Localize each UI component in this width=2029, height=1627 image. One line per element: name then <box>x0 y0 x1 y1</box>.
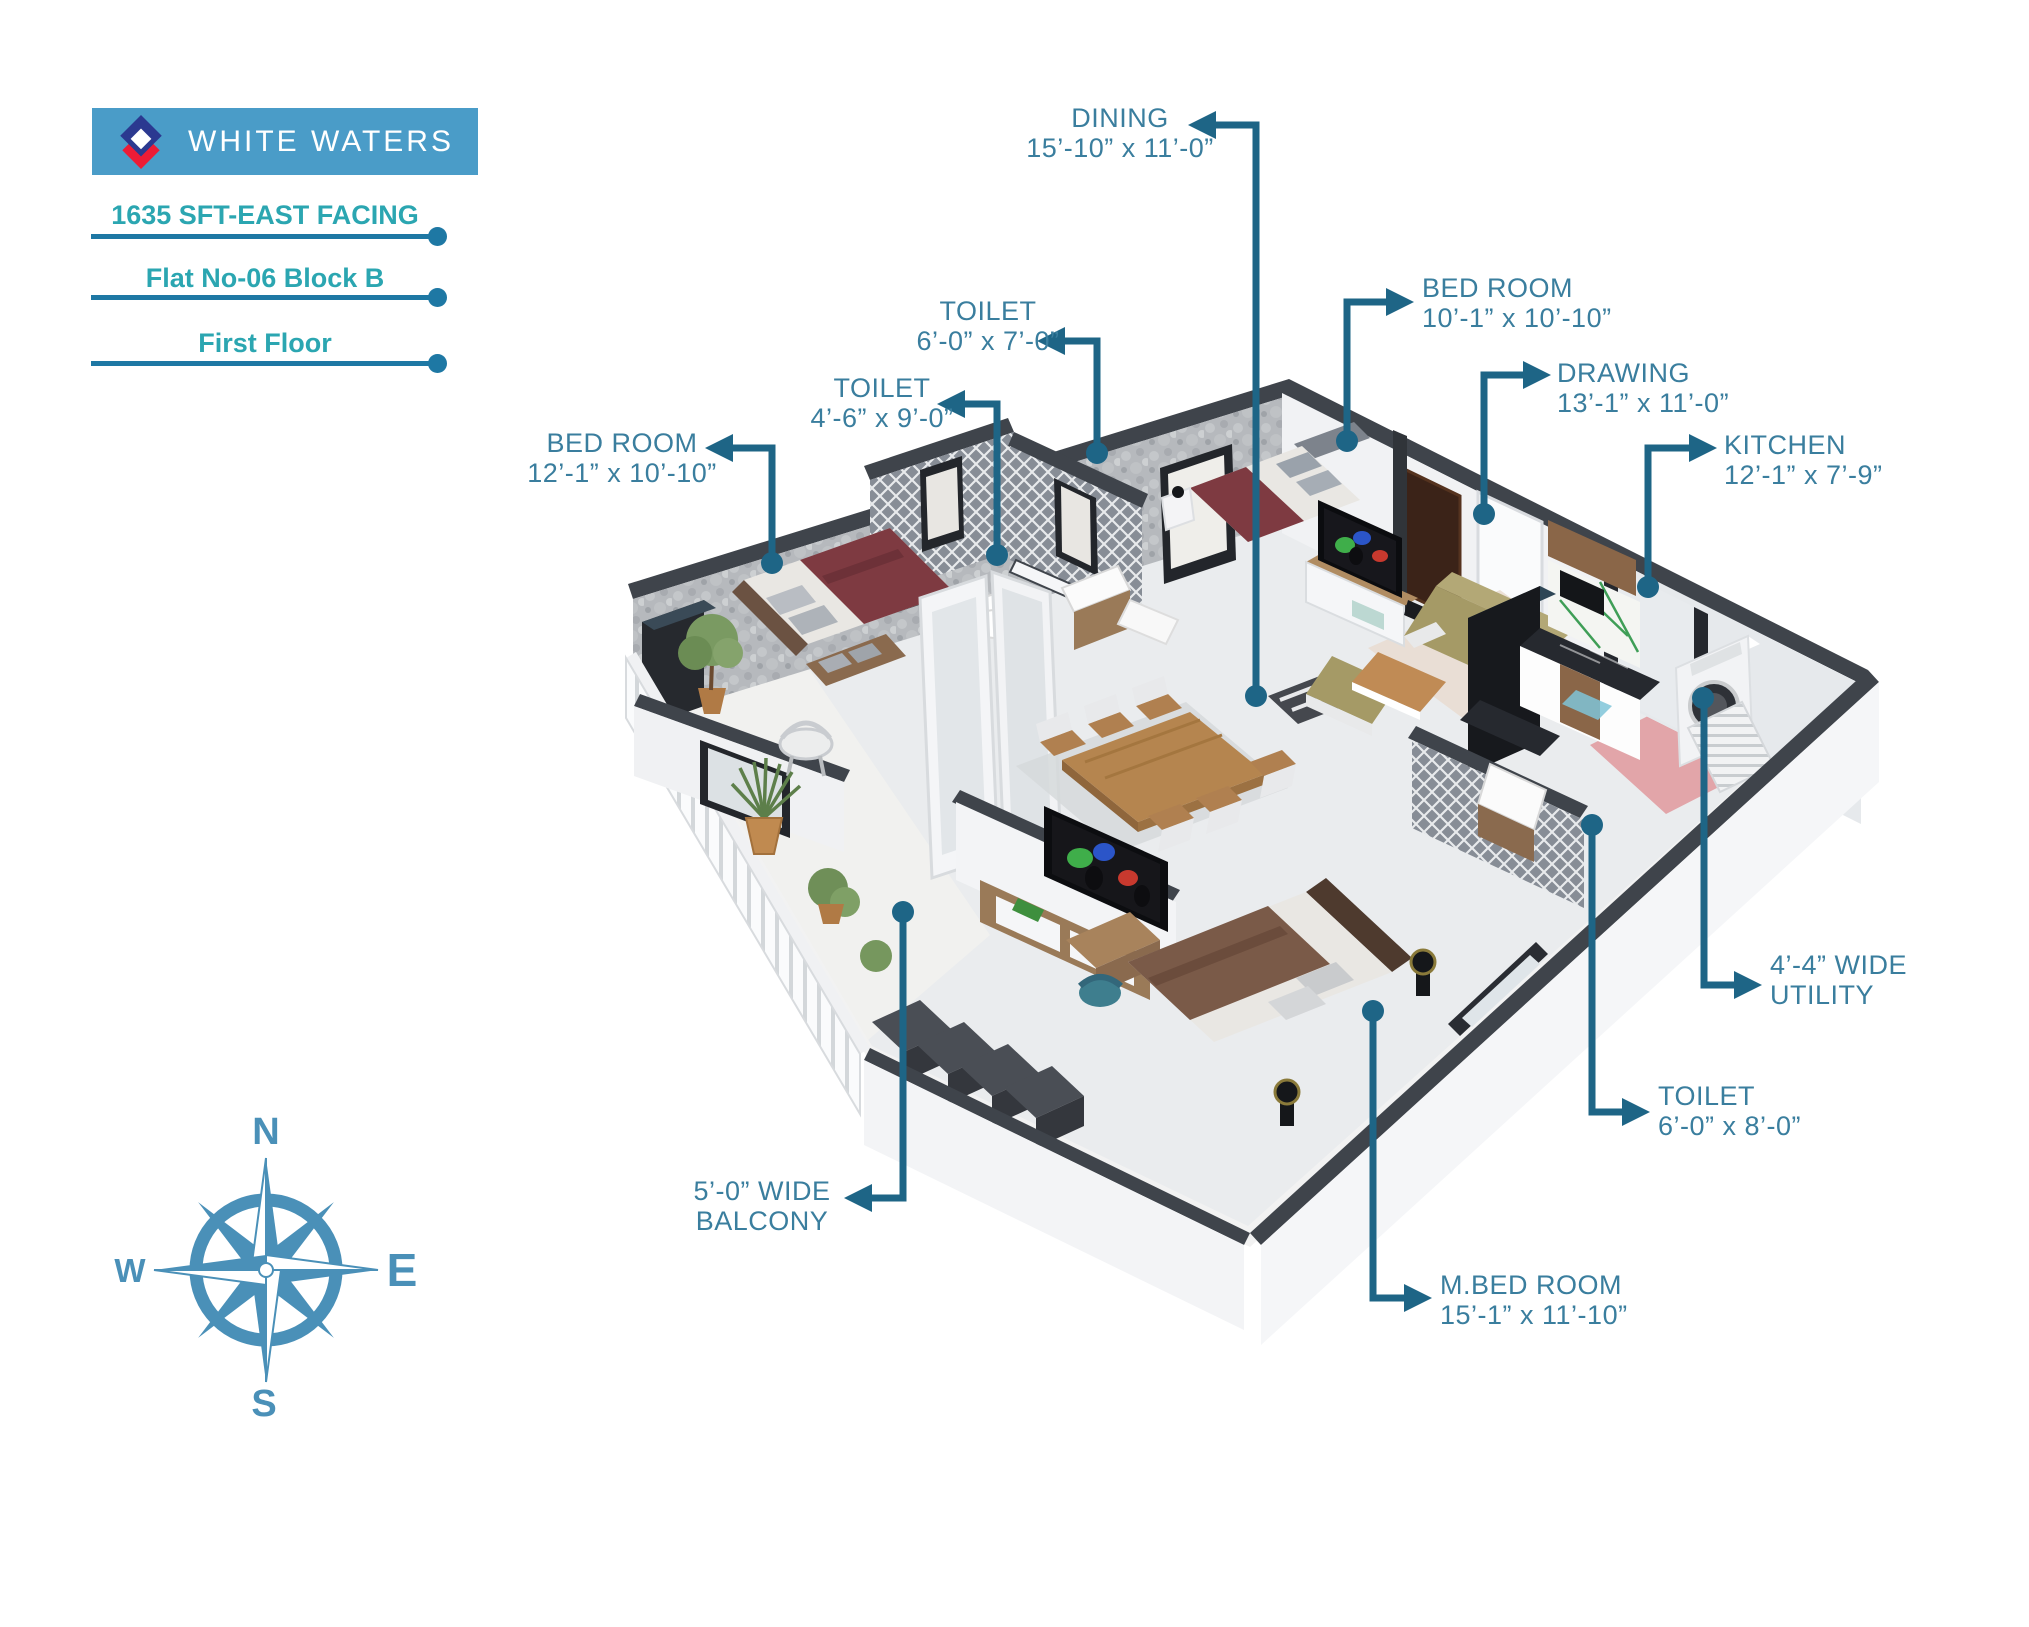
leader-kitchen <box>1637 434 1717 598</box>
room-dims: 6’-0” x 8’-0” <box>1658 1111 1801 1141</box>
label-toilet3: TOILET 6’-0” x 8’-0” <box>1658 1081 1801 1141</box>
room-name: TOILET <box>732 373 1032 403</box>
label-bedroom2: BED ROOM 10’-1” x 10’-10” <box>1422 273 1612 333</box>
room-name: M.BED ROOM <box>1440 1270 1628 1300</box>
brand-title: WHITE WATERS <box>188 125 454 159</box>
room-dims: 4’-6” x 9’-0” <box>732 403 1032 433</box>
flat-rule <box>91 295 431 300</box>
rule-dot <box>428 227 447 246</box>
label-toilet2: TOILET 4’-6” x 9’-0” <box>732 373 1032 433</box>
room-name: DRAWING <box>1557 358 1729 388</box>
brand-banner: WHITE WATERS <box>92 108 478 175</box>
room-name: BED ROOM <box>1422 273 1612 303</box>
area-facing-rule <box>91 234 431 239</box>
floorplan-render: N S W E <box>0 0 2029 1627</box>
label-kitchen: KITCHEN 12’-1” x 7’-9” <box>1724 430 1883 490</box>
label-toilet1: TOILET 6’-0” x 7’-0” <box>838 296 1138 356</box>
room-name: 5’-0” WIDE <box>612 1176 912 1206</box>
room-dims: 10’-1” x 10’-10” <box>1422 303 1612 333</box>
compass-rose-icon: N S W E <box>114 1111 417 1425</box>
room-name: KITCHEN <box>1724 430 1883 460</box>
room-dims: BALCONY <box>612 1206 912 1236</box>
floor-rule <box>91 361 431 366</box>
rule-dot <box>428 354 447 373</box>
label-mbedroom: M.BED ROOM 15’-1” x 11’-10” <box>1440 1270 1628 1330</box>
room-name: TOILET <box>1658 1081 1801 1111</box>
label-dining: DINING 15’-10” x 11’-0” <box>970 103 1270 163</box>
area-facing-heading: 1635 SFT-EAST FACING <box>80 200 450 231</box>
compass-east-label: E <box>387 1244 418 1296</box>
compass-west-label: W <box>114 1252 146 1289</box>
flat-heading: Flat No-06 Block B <box>80 263 450 294</box>
room-dims: 12’-1” x 7’-9” <box>1724 460 1883 490</box>
label-bedroom1: BED ROOM 12’-1” x 10’-10” <box>472 428 772 488</box>
compass-south-label: S <box>251 1383 276 1425</box>
room-name: BED ROOM <box>472 428 772 458</box>
room-dims: 15’-1” x 11’-10” <box>1440 1300 1628 1330</box>
room-dims: UTILITY <box>1770 980 1907 1010</box>
floor-heading: First Floor <box>80 328 450 359</box>
room-name: 4’-4” WIDE <box>1770 950 1907 980</box>
room-dims: 6’-0” x 7’-0” <box>838 326 1138 356</box>
room-name: DINING <box>970 103 1270 133</box>
label-utility: 4’-4” WIDE UTILITY <box>1770 950 1907 1010</box>
rule-dot <box>428 288 447 307</box>
compass-north-label: N <box>252 1111 279 1153</box>
room-name: TOILET <box>838 296 1138 326</box>
label-balcony: 5’-0” WIDE BALCONY <box>612 1176 912 1236</box>
diamond-logo-icon <box>118 115 164 169</box>
room-dims: 12’-1” x 10’-10” <box>472 458 772 488</box>
room-dims: 15’-10” x 11’-0” <box>970 133 1270 163</box>
label-drawing: DRAWING 13’-1” x 11’-0” <box>1557 358 1729 418</box>
floor-plan-sheet: N S W E WHITE WATERS 1635 SFT-EAST FACIN… <box>0 0 2029 1627</box>
room-dims: 13’-1” x 11’-0” <box>1557 388 1729 418</box>
